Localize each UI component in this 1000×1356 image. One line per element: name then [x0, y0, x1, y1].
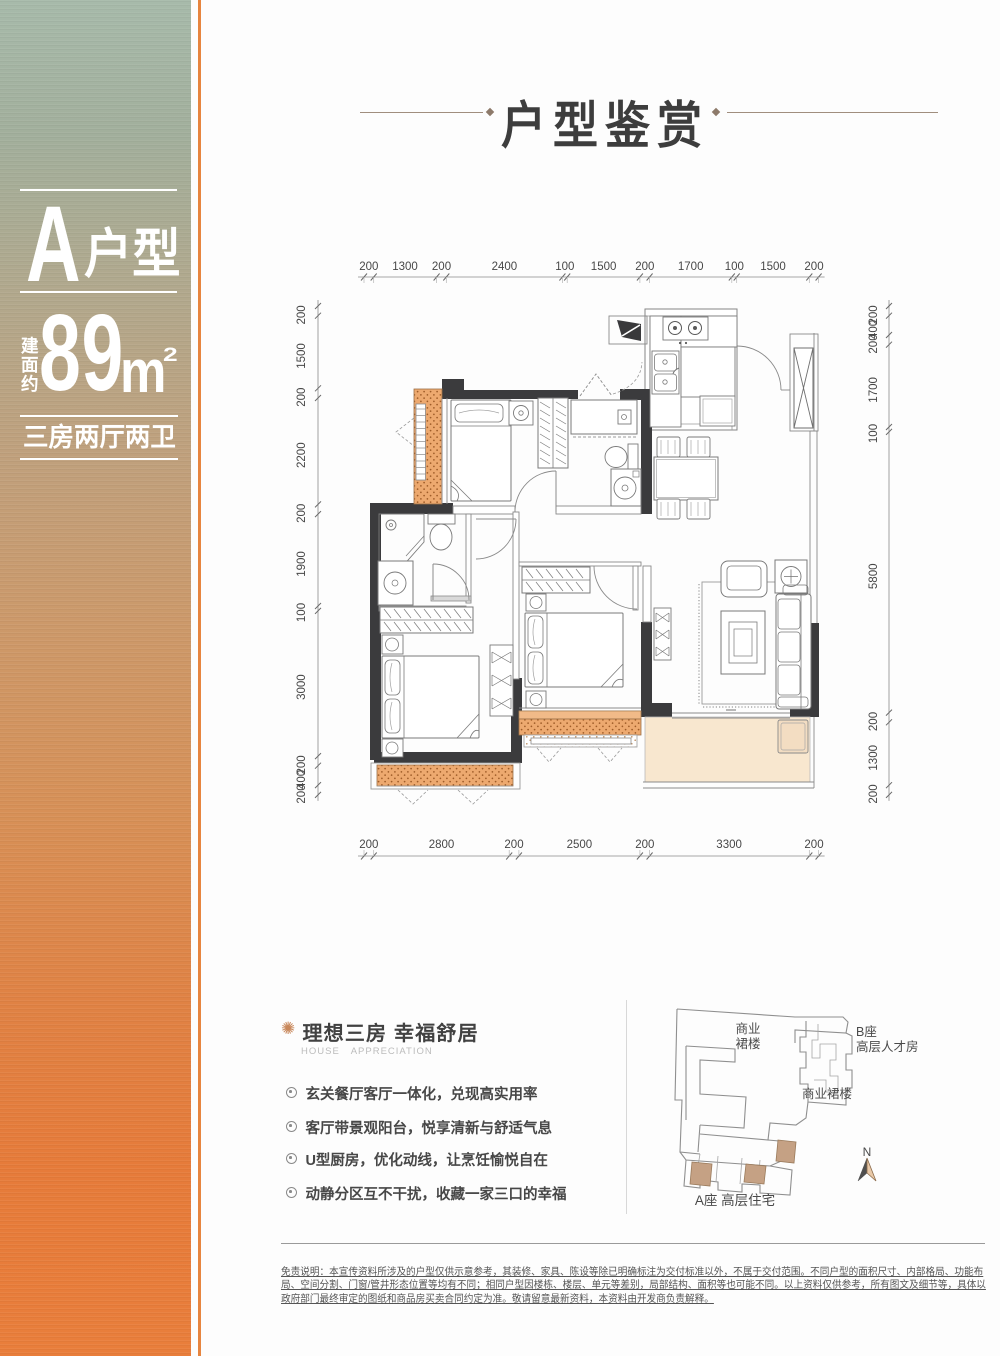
svg-text:200: 200	[296, 305, 308, 324]
svg-text:商业: 商业	[735, 1021, 760, 1036]
svg-text:1700: 1700	[868, 377, 880, 403]
svg-text:1500: 1500	[591, 261, 617, 273]
svg-text:1500: 1500	[296, 343, 308, 369]
svg-text:200: 200	[504, 839, 523, 851]
svg-text:5800: 5800	[868, 564, 880, 590]
svg-text:1300: 1300	[392, 261, 418, 273]
svg-text:1300: 1300	[868, 745, 880, 771]
svg-text:高层人才房: 高层人才房	[856, 1039, 919, 1054]
svg-text:1500: 1500	[760, 261, 786, 273]
svg-text:1700: 1700	[678, 261, 704, 273]
svg-text:100: 100	[555, 261, 574, 273]
svg-text:100: 100	[725, 261, 744, 273]
svg-text:裙楼: 裙楼	[735, 1036, 760, 1051]
svg-text:200: 200	[296, 504, 308, 523]
svg-text:N: N	[863, 1145, 872, 1159]
svg-text:200: 200	[359, 261, 378, 273]
svg-text:B座: B座	[856, 1024, 877, 1039]
svg-text:200: 200	[432, 261, 451, 273]
svg-text:1900: 1900	[296, 551, 308, 577]
svg-text:200: 200	[868, 784, 880, 803]
svg-text:200: 200	[359, 839, 378, 851]
svg-text:2200: 2200	[296, 442, 308, 468]
svg-text:2800: 2800	[429, 839, 455, 851]
svg-text:100: 100	[296, 603, 308, 622]
svg-text:3000: 3000	[296, 674, 308, 700]
svg-text:商业裙楼: 商业裙楼	[802, 1086, 852, 1101]
svg-text:200: 200	[804, 261, 823, 273]
svg-text:200: 200	[868, 712, 880, 731]
svg-text:3300: 3300	[716, 839, 742, 851]
svg-text:100: 100	[868, 424, 880, 443]
svg-text:200: 200	[635, 261, 654, 273]
svg-text:200: 200	[296, 784, 308, 803]
svg-text:A座 高层住宅: A座 高层住宅	[695, 1192, 775, 1208]
svg-text:200: 200	[804, 839, 823, 851]
svg-text:200: 200	[635, 839, 654, 851]
svg-text:2500: 2500	[567, 839, 593, 851]
svg-text:2400: 2400	[492, 261, 518, 273]
svg-text:200: 200	[868, 334, 880, 353]
svg-text:200: 200	[296, 388, 308, 407]
